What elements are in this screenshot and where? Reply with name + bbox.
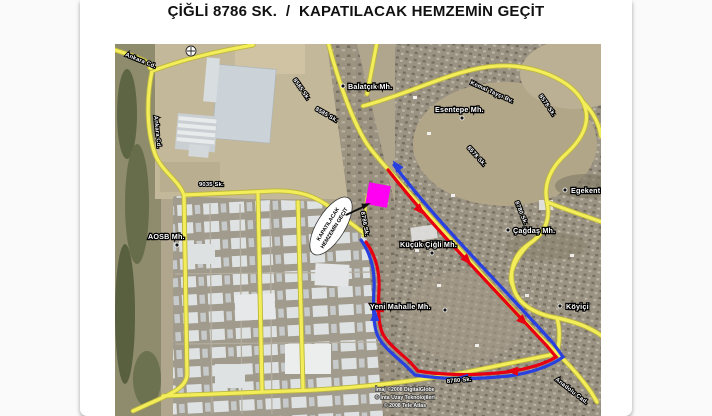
poi-dot	[506, 228, 510, 232]
neighborhood-label-balatcik: Balatçık Mh.	[348, 82, 392, 91]
poi-dot	[460, 116, 464, 120]
neighborhood-label-yeni-mahalle: Yeni Mahalle Mh.	[370, 302, 431, 311]
poi-dot	[558, 304, 562, 308]
poi-dot	[563, 188, 567, 192]
street-label: 9035 Sk.	[199, 182, 224, 188]
announcement-card: ÇİĞLİ 8786 SK. / KAPATILACAK HEMZEMİN GE…	[80, 0, 632, 416]
poi-dot	[341, 84, 345, 88]
poi-dot	[443, 308, 447, 312]
credit-line-1: İmaj ©2008 DigitalGlobe	[375, 386, 434, 393]
neighborhood-label-egekent: Egekent	[571, 186, 601, 195]
neighborhood-label-cagdas: Çağdaş Mh.	[513, 226, 555, 235]
page-title: ÇİĞLİ 8786 SK. / KAPATILACAK HEMZEMİN GE…	[80, 3, 632, 20]
junction-icon	[186, 46, 196, 56]
neighborhood-label-esentepe: Esentepe Mh.	[435, 105, 484, 114]
poi-dot	[175, 243, 179, 247]
poi-dot	[430, 251, 434, 255]
credit-line-3: © 2008 Tele Atlas	[384, 402, 426, 409]
neighborhood-label-kucuk-cigli: Küçük Çiğli Mh.	[400, 240, 457, 249]
credit-line-2: © İnta Uzay Teknolojileri	[375, 394, 435, 401]
neighborhood-label-koyici: Köyiçi	[566, 302, 589, 311]
page: ÇİĞLİ 8786 SK. / KAPATILACAK HEMZEMİN GE…	[0, 0, 712, 416]
map-image: KAPATILACAK HEMZEMİN GEÇİT Ankara Cd. An…	[115, 44, 601, 416]
neighborhood-label-aosb: AOSB Mh.	[148, 232, 185, 241]
